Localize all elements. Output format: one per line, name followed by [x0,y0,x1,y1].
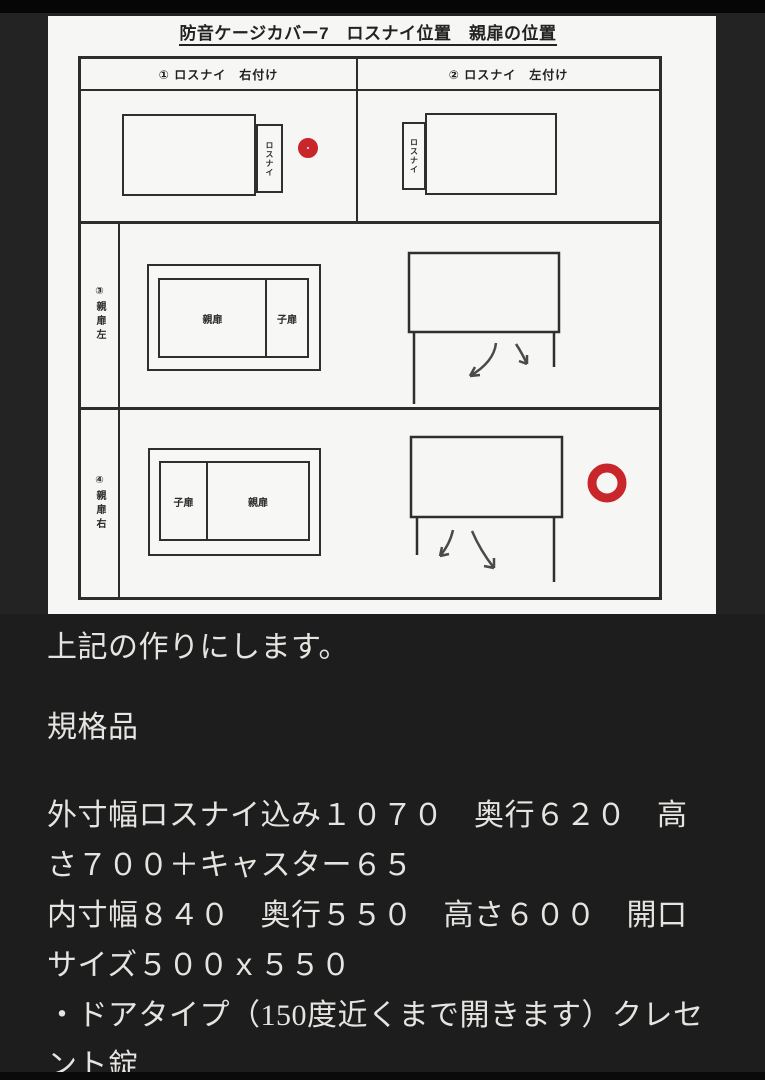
bottom-black-bar [0,1072,765,1080]
child-door-label: 子扉 [161,463,206,539]
header-lossnay-left: ② ロスナイ 左付け [358,59,659,89]
diagram-page: 防音ケージカバー7 ロスナイ位置 親扉の位置 ① ロスナイ 右付け ② ロスナイ… [48,16,716,614]
note-line: 規格品 [47,702,139,746]
child-door-label: 子扉 [265,280,307,356]
description-text-block: 上記の作りにします。 規格品 外寸幅ロスナイ込み１０７０ 奥行６２０ 高 さ７０… [0,614,765,1080]
door-open-diagram [405,432,640,594]
cage-top-view-rect [122,114,256,196]
header-lossnay-right: ① ロスナイ 右付け [81,59,356,89]
row1-row2-divider-line [81,221,659,224]
door-swing-arrow-icon [470,343,527,376]
spec-line: 外寸幅ロスナイ込み１０７０ 奥行６２０ 高 [47,790,688,834]
label-column-divider-line [118,221,120,597]
row-label-parent-door-left: ③親扉左 [81,221,118,407]
cage-front-doors: 親扉 子扉 [158,278,309,358]
parent-door-label: 親扉 [206,463,308,539]
lossnay-unit-left: ロスナイ [402,122,426,190]
spec-line: ・ドアタイプ（150度近くまで開きます）クレセ [47,990,704,1034]
door-open-diagram [403,248,573,407]
layout-table: ① ロスナイ 右付け ② ロスナイ 左付け ロスナイ ロスナイ ③親扉左 親扉 … [78,56,662,600]
cage-front-doors: 子扉 親扉 [159,461,310,541]
spec-line: サイズ５００ｘ５５０ [47,940,351,984]
lossnay-unit-right: ロスナイ [256,124,283,193]
spec-line: 内寸幅８４０ 奥行５５０ 高さ６００ 開口 [47,890,688,934]
spec-line: さ７００＋キャスター６５ [47,840,413,884]
header-divider-line [81,89,659,91]
top-black-bar [0,0,765,13]
row2-row3-divider-line [81,407,659,410]
parent-door-label: 親扉 [160,280,265,356]
correct-mark-icon [298,138,318,158]
cage-top-view-rect [425,113,557,195]
correct-mark-icon [592,468,622,498]
diagram-title: 防音ケージカバー7 ロスナイ位置 親扉の位置 [148,19,588,44]
note-line: 上記の作りにします。 [47,622,349,666]
document-photo: 防音ケージカバー7 ロスナイ位置 親扉の位置 ① ロスナイ 右付け ② ロスナイ… [0,0,765,1080]
door-swing-arrow-icon [440,530,494,568]
row-label-parent-door-right: ④親扉右 [81,410,118,597]
